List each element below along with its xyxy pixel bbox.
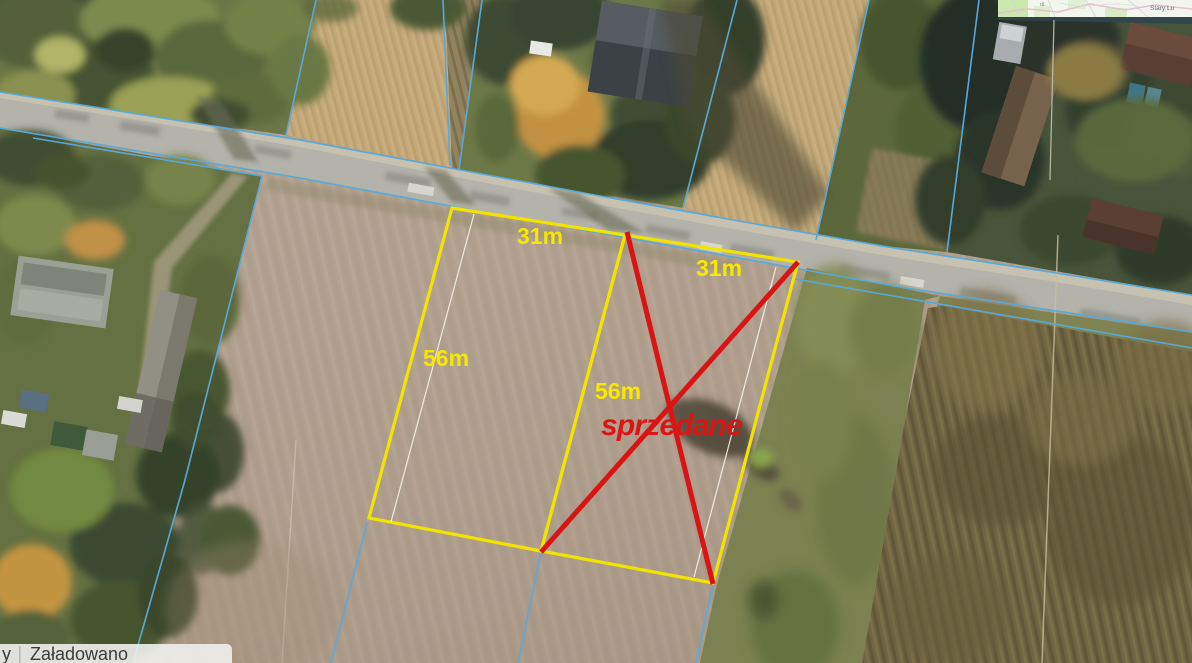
svg-text:sprzedane: sprzedane (601, 409, 742, 442)
svg-text:56m: 56m (423, 345, 469, 371)
svg-text:ul.: ul. (1040, 2, 1046, 8)
svg-text:31m: 31m (696, 255, 742, 281)
svg-text:31m: 31m (517, 223, 563, 249)
svg-text:y: y (2, 644, 11, 663)
svg-text:Stary Lu: Stary Lu (1150, 5, 1175, 12)
svg-text:Załadowano: Załadowano (30, 644, 128, 663)
svg-text:56m: 56m (595, 378, 641, 404)
